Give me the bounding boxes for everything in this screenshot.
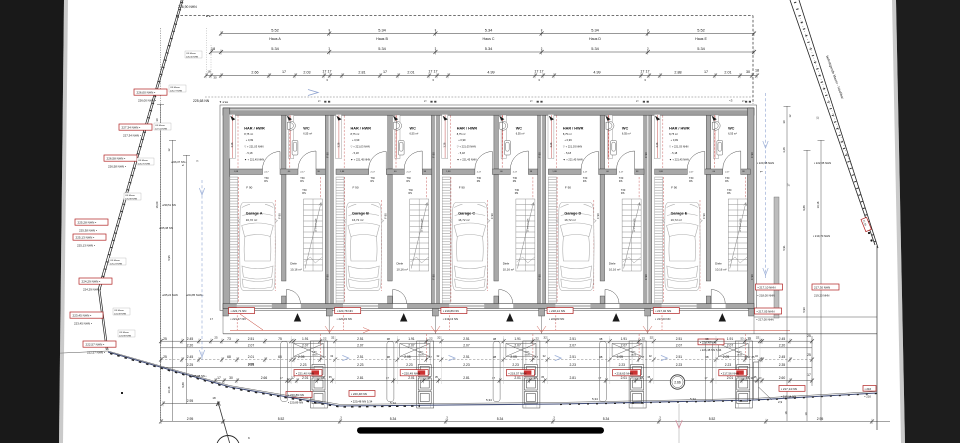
svg-text:222,57 NHN ▪: 222,57 NHN ▪ <box>86 343 105 347</box>
svg-text:30: 30 <box>155 118 159 121</box>
svg-text:30: 30 <box>746 70 750 74</box>
svg-text:5,34: 5,34 <box>390 401 396 405</box>
svg-text:10: 10 <box>804 412 808 415</box>
svg-text:<3: <3 <box>729 99 733 103</box>
svg-text:5.52: 5.52 <box>271 28 279 33</box>
svg-text:OK Mauer: OK Mauer <box>114 309 124 312</box>
svg-text:Haus A: Haus A <box>269 37 281 41</box>
svg-text:OK Mauer: OK Mauer <box>125 194 135 197</box>
svg-text:gm: gm <box>636 101 639 103</box>
svg-text:25: 25 <box>214 335 218 339</box>
svg-text:gm: gm <box>760 171 763 173</box>
svg-text:4.99: 4.99 <box>593 70 600 74</box>
svg-text:18: 18 <box>784 411 788 414</box>
svg-text:5,90: 5,90 <box>802 307 806 313</box>
svg-text:226,76 NHN: 226,76 NHN <box>138 163 150 165</box>
svg-text:gm: gm <box>424 101 427 103</box>
svg-text:226,77 NHN: 226,77 NHN <box>170 90 182 92</box>
svg-text:17: 17 <box>291 376 295 380</box>
svg-text:▪ 222,71 NN: ▪ 222,71 NN <box>231 309 247 313</box>
svg-text:217,30 NHN: 217,30 NHN <box>814 286 830 290</box>
svg-text:5.52: 5.52 <box>709 417 716 421</box>
svg-text:▪226,37 NN ▪: ▪226,37 NN ▪ <box>171 160 187 164</box>
svg-text:▪ 226,48 NN 5,34: ▪ 226,48 NN 5,34 <box>700 348 722 352</box>
svg-text:17: 17 <box>787 183 791 186</box>
svg-text:2.88: 2.88 <box>674 70 681 74</box>
svg-text:▪ 218,00 NHN: ▪ 218,00 NHN <box>758 294 775 298</box>
svg-text:▪ 219,70 NHN: ▪ 219,70 NHN <box>813 234 830 238</box>
svg-text:9,88: 9,88 <box>181 382 185 388</box>
svg-text:12: 12 <box>788 114 792 117</box>
svg-text:30: 30 <box>213 76 217 80</box>
svg-text:OK Mauer: OK Mauer <box>170 86 180 89</box>
svg-text:Garage C: Garage C <box>458 212 475 216</box>
svg-text:▪ 217,10 NHN: ▪ 217,10 NHN <box>758 286 776 290</box>
svg-text:225,38 NHN ▪: 225,38 NHN ▪ <box>79 229 97 233</box>
svg-text:17: 17 <box>759 376 762 380</box>
svg-text:5.34: 5.34 <box>485 28 493 33</box>
svg-text:5,34: 5,34 <box>690 397 696 401</box>
svg-text:▪ 220,89 NN: ▪ 220,89 NN <box>288 393 304 397</box>
svg-text:227,34 NHN ▪: 227,34 NHN ▪ <box>122 126 141 130</box>
svg-text:225,28 NHN ▪: 225,28 NHN ▪ <box>78 221 97 225</box>
svg-text:225,88 NN ▪: 225,88 NN ▪ <box>192 374 207 378</box>
svg-text:▪225,24 NHN: ▪225,24 NHN <box>162 293 178 297</box>
svg-text:5,91: 5,91 <box>782 245 786 251</box>
svg-text:▪ 220,03 NN: ▪ 220,03 NN <box>337 317 352 321</box>
svg-text:18: 18 <box>212 396 216 400</box>
svg-text:5.52: 5.52 <box>697 28 705 33</box>
svg-text:OK Mauer: OK Mauer <box>138 159 148 162</box>
svg-text:▪239,51 NN: ▪239,51 NN <box>162 203 176 207</box>
svg-text:3,26: 3,26 <box>782 147 786 153</box>
svg-text:65: 65 <box>278 355 282 359</box>
svg-text:▪ 218,65 NHN: ▪ 218,65 NHN <box>615 371 633 375</box>
svg-text:224,29 NHN ▪: 224,29 NHN ▪ <box>82 280 101 284</box>
svg-text:4.99: 4.99 <box>487 70 494 74</box>
svg-text:OK Mauer: OK Mauer <box>110 259 120 262</box>
svg-text:2.03: 2.03 <box>303 70 310 74</box>
svg-text:17: 17 <box>807 373 811 377</box>
svg-text:2.20: 2.20 <box>187 344 194 348</box>
svg-text:wk: wk <box>196 161 198 163</box>
svg-text:25: 25 <box>163 355 167 359</box>
svg-text:gm: gm <box>530 101 533 103</box>
svg-text:gm: gm <box>318 101 321 103</box>
svg-text:25: 25 <box>807 334 811 338</box>
svg-text:10,16: 10,16 <box>816 201 820 208</box>
svg-text:2.23: 2.23 <box>248 363 255 367</box>
svg-text:18: 18 <box>207 70 211 74</box>
svg-text:5.34: 5.34 <box>591 46 599 51</box>
svg-text:25: 25 <box>163 337 167 341</box>
svg-text:2.60: 2.60 <box>779 376 786 380</box>
svg-text:17 17: 17 17 <box>322 70 331 74</box>
svg-text:■ ◄: ■ ◄ <box>206 15 211 18</box>
svg-text:Garage A: Garage A <box>246 212 263 216</box>
svg-text:17 17: 17 17 <box>640 70 649 74</box>
svg-text:219,20 NHN: 219,20 NHN <box>814 294 829 298</box>
svg-text:▼ ≡'≡≡: ▼ ≡'≡≡ <box>219 100 228 104</box>
svg-text:▪225,38 NN: ▪225,38 NN <box>159 226 173 230</box>
svg-text:224,29 NHN ▪: 224,29 NHN ▪ <box>83 288 101 292</box>
svg-text:226,58 NHN ▪: 226,58 NHN ▪ <box>107 157 126 161</box>
svg-text:▪ 217,00 NN: ▪ 217,00 NN <box>655 317 670 321</box>
svg-text:12: 12 <box>167 148 171 151</box>
svg-text:5.34: 5.34 <box>390 417 397 421</box>
svg-text:2.01: 2.01 <box>407 70 414 74</box>
svg-text:5.52: 5.52 <box>278 417 285 421</box>
svg-text:▪ 219,13 NN: ▪ 219,13 NN <box>443 317 458 321</box>
svg-text:5.34: 5.34 <box>378 46 386 51</box>
svg-text:▪ 216: ▪ 216 <box>865 387 872 391</box>
svg-text:K: K <box>248 436 250 440</box>
svg-text:225,68 NN: 225,68 NN <box>193 99 210 103</box>
svg-text:▪ 219,57 NHN: ▪ 219,57 NHN <box>508 371 526 375</box>
svg-text:▪ 222,35 NHN: ▪ 222,35 NHN <box>814 161 831 165</box>
svg-text:17: 17 <box>383 70 387 74</box>
svg-text:226,00 NHN ▪: 226,00 NHN ▪ <box>137 91 156 95</box>
svg-text:5,34: 5,34 <box>592 397 598 401</box>
svg-text:2.95: 2.95 <box>817 417 824 421</box>
svg-text:2.07: 2.07 <box>248 344 255 348</box>
svg-text:17: 17 <box>217 376 221 380</box>
svg-text:225,23 NHN: 225,23 NHN <box>110 263 122 265</box>
svg-text:2.66: 2.66 <box>251 70 258 74</box>
svg-text:30: 30 <box>782 120 786 123</box>
svg-text:▪ 220,83 NN: ▪ 220,83 NN <box>549 317 564 321</box>
svg-text:10,18: 10,18 <box>167 386 171 393</box>
svg-text:225,13 NHN ▪: 225,13 NHN ▪ <box>76 236 95 240</box>
svg-text:73: 73 <box>227 337 231 341</box>
svg-text:5.34: 5.34 <box>271 46 279 51</box>
svg-text:Haus D: Haus D <box>589 37 601 41</box>
svg-text:Garage E: Garage E <box>671 212 688 216</box>
svg-text:Haus E: Haus E <box>695 37 707 41</box>
svg-text:▪ 217,14 NN: ▪ 217,14 NN <box>781 387 797 391</box>
svg-text:17 17: 17 17 <box>534 70 543 74</box>
svg-text:2.66: 2.66 <box>674 381 681 385</box>
svg-text:2.95: 2.95 <box>187 417 194 421</box>
svg-text:5.34: 5.34 <box>697 46 705 51</box>
svg-text:25: 25 <box>807 353 811 357</box>
svg-text:▪ 221,40 NHN: ▪ 221,40 NHN <box>296 371 314 375</box>
svg-text:53: 53 <box>741 336 744 340</box>
svg-text:▪224,85 NHN ▪: ▪224,85 NHN ▪ <box>186 293 203 297</box>
svg-text:2.51: 2.51 <box>248 337 255 341</box>
svg-text:18: 18 <box>211 46 215 51</box>
svg-text:▪ 221,47 NN: ▪ 221,47 NN <box>231 317 246 321</box>
svg-text:2.25: 2.25 <box>187 363 194 367</box>
svg-text:12: 12 <box>816 116 820 119</box>
svg-text:2.20: 2.20 <box>779 344 786 348</box>
svg-text:2,9: 2,9 <box>778 400 783 404</box>
svg-text:2.45: 2.45 <box>187 355 194 359</box>
svg-text:223,45 NHN ▪: 223,45 NHN ▪ <box>73 314 92 318</box>
svg-text:5.34: 5.34 <box>378 28 386 33</box>
svg-text:227,44 NHN: 227,44 NHN <box>155 128 167 130</box>
svg-text:226,58 NHN ▪: 226,58 NHN ▪ <box>108 165 126 169</box>
svg-text:227,34 NHN ▪: 227,34 NHN ▪ <box>123 134 141 138</box>
svg-text:Haus C: Haus C <box>483 37 495 41</box>
svg-text:gm: gm <box>742 101 745 103</box>
svg-text:2.45: 2.45 <box>187 337 194 341</box>
svg-text:225,98 NHN: 225,98 NHN <box>125 198 137 200</box>
svg-text:5.: 5. <box>181 164 185 166</box>
svg-text:▪ 220,48 NN 5,34: ▪ 220,48 NN 5,34 <box>351 399 373 403</box>
svg-text:5.34: 5.34 <box>603 417 610 421</box>
svg-text:5.34: 5.34 <box>497 417 504 421</box>
svg-text:OK Mauer: OK Mauer <box>186 52 196 55</box>
svg-text:▪ 220,78 NN: ▪ 220,78 NN <box>337 309 353 313</box>
svg-text:2.01: 2.01 <box>724 70 731 74</box>
svg-text:17 17: 17 17 <box>428 70 437 74</box>
svg-text:▪ 219,86 NN: ▪ 219,86 NN <box>443 309 459 313</box>
svg-text:17: 17 <box>704 70 708 74</box>
svg-text:2.81: 2.81 <box>358 70 365 74</box>
svg-text:2.66: 2.66 <box>261 376 268 380</box>
svg-text:Garage B: Garage B <box>352 212 369 216</box>
svg-text:▪ 218,14 NN: ▪ 218,14 NN <box>549 309 565 313</box>
svg-text:224,38 NHN: 224,38 NHN <box>114 313 126 315</box>
svg-text:16,00: 16,00 <box>155 201 159 208</box>
svg-text:2.95: 2.95 <box>187 399 194 403</box>
svg-text:▪ 217,02 NN: ▪ 217,02 NN <box>655 309 671 313</box>
svg-text:5,95: 5,95 <box>167 255 171 261</box>
svg-text:▪ 220,98 NHN: ▪ 220,98 NHN <box>757 161 774 165</box>
svg-text:▪ 220,48 NN: ▪ 220,48 NN <box>351 392 367 396</box>
svg-text:5,34: 5,34 <box>486 398 492 402</box>
svg-text:2.35: 2.35 <box>779 363 786 367</box>
svg-text:2.45: 2.45 <box>779 337 786 341</box>
svg-text:18: 18 <box>755 68 759 72</box>
svg-text:▪ 217,56 NHN: ▪ 217,56 NHN <box>721 371 739 375</box>
svg-text:▪ 217,14 NN: ▪ 217,14 NN <box>781 394 796 398</box>
svg-text:2.45: 2.45 <box>779 355 786 359</box>
svg-text:▪ 217,00 NHN: ▪ 217,00 NHN <box>757 318 774 322</box>
svg-text:▪ 217,05 NHN: ▪ 217,05 NHN <box>757 310 775 314</box>
svg-text:OK Mauer: OK Mauer <box>155 124 165 127</box>
svg-text:30: 30 <box>229 376 233 380</box>
svg-text:223,45 NHN ▪: 223,45 NHN ▪ <box>74 322 92 326</box>
svg-text:222,57 NHN ▪: 222,57 NHN ▪ <box>87 351 105 355</box>
svg-text:Haus B: Haus B <box>376 37 388 41</box>
svg-text:▪ 216: ▪ 216 <box>865 394 872 398</box>
svg-text:223,98 NHN: 223,98 NHN <box>119 335 131 337</box>
svg-text:5.34: 5.34 <box>485 46 493 51</box>
svg-text:5.34: 5.34 <box>591 28 599 33</box>
svg-text:2.01: 2.01 <box>248 355 255 359</box>
svg-text:9,86: 9,86 <box>802 205 806 211</box>
svg-text:68: 68 <box>227 355 231 359</box>
svg-text:OK Mauer: OK Mauer <box>119 331 129 334</box>
svg-text:17: 17 <box>282 70 286 74</box>
svg-text:▪ 220,49 NHN: ▪ 220,49 NHN <box>402 371 420 375</box>
svg-text:226,30 NHN: 226,30 NHN <box>186 56 198 58</box>
svg-text:225,13 NHN ▪: 225,13 NHN ▪ <box>77 244 95 248</box>
svg-text:226,00 NHN ▪: 226,00 NHN ▪ <box>138 99 156 103</box>
svg-text:75: 75 <box>278 337 282 341</box>
svg-text:Garage D: Garage D <box>564 212 581 216</box>
svg-text:▪ 220,89 NN: ▪ 220,89 NN <box>288 400 303 404</box>
